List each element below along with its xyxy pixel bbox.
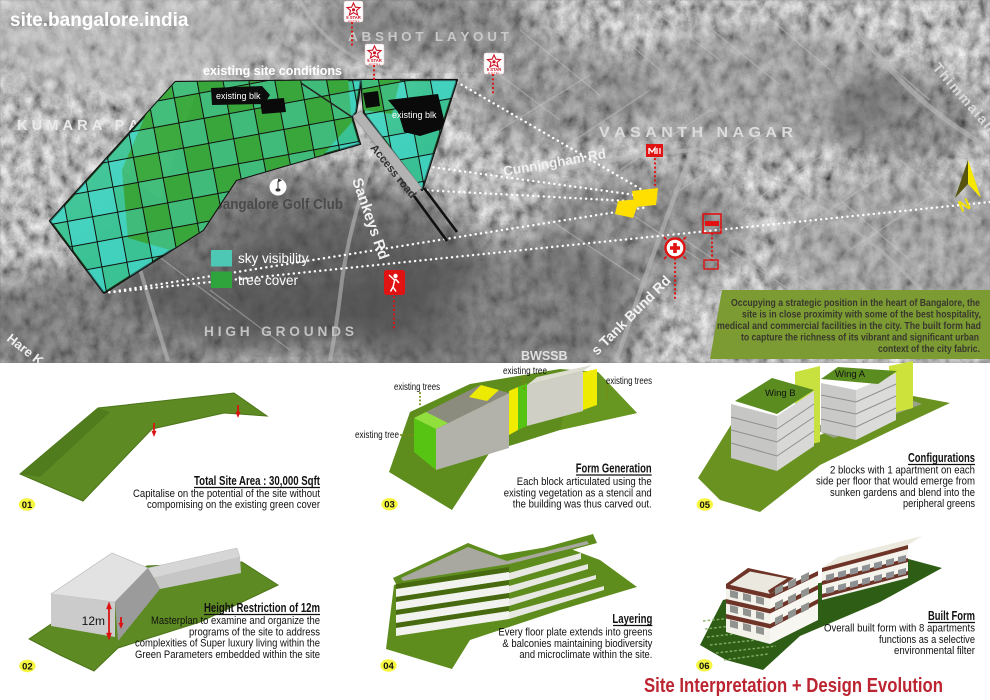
svg-text:medical and commercial facilit: medical and commercial facilities in the…: [717, 321, 981, 332]
svg-text:Layering: Layering: [612, 612, 652, 626]
svg-text:environmental filter: environmental filter: [894, 645, 975, 657]
svg-text:04: 04: [383, 661, 394, 672]
svg-text:V A S A N T H N A G A R: V A S A N T H N A G A R: [599, 124, 793, 141]
svg-text:Occupying a strategic position: Occupying a strategic position in the he…: [731, 298, 980, 309]
svg-text:Total Site Area : 30,000 Sqft: Total Site Area : 30,000 Sqft: [194, 474, 321, 488]
svg-text:existing site conditions: existing site conditions: [203, 63, 342, 78]
svg-text:Configurations: Configurations: [908, 451, 975, 465]
svg-text:& balconies maintaining biodiv: & balconies maintaining biodiversity: [502, 638, 652, 650]
svg-text:existing tree: existing tree: [355, 430, 399, 441]
svg-text:existing trees: existing trees: [606, 376, 652, 387]
svg-text:functions as a selective: functions as a selective: [879, 634, 975, 646]
svg-text:and microclimate within the si: and microclimate within the site.: [519, 649, 652, 661]
svg-text:Height Restriction of 12m: Height Restriction of 12m: [204, 601, 320, 615]
svg-text:Bangalore Golf Club: Bangalore Golf Club: [213, 197, 343, 213]
svg-text:tree cover: tree cover: [238, 273, 299, 288]
svg-text:H O T E L: H O T E L: [348, 19, 360, 23]
svg-text:existing blk: existing blk: [216, 91, 261, 101]
svg-text:A B S H O T L A Y O U T: A B S H O T L A Y O U T: [348, 29, 509, 44]
svg-text:12m: 12m: [82, 614, 105, 628]
svg-text:Built Form: Built Form: [928, 609, 975, 623]
svg-text:03: 03: [384, 500, 395, 511]
svg-text:sunken gardens and blend into: sunken gardens and blend into the: [830, 487, 975, 499]
svg-text:compomising on the existing gr: compomising on the existing green cover: [147, 499, 320, 511]
svg-text:site is in close proximity wit: site is in close proximity with some of …: [742, 310, 981, 321]
svg-text:02: 02: [22, 662, 33, 673]
svg-text:05: 05: [700, 500, 711, 511]
svg-text:to capture the richness of its: to capture the richness of its vibrant a…: [741, 333, 979, 344]
svg-text:existing tree: existing tree: [503, 366, 547, 377]
svg-text:K U M A R A P A: K U M A R A P A: [17, 117, 139, 134]
svg-text:side per floor that would emer: side per floor that would emerge from: [816, 476, 975, 488]
svg-text:Green Parameters embedded with: Green Parameters embedded within the sit…: [135, 649, 320, 661]
svg-text:programs of the site to addres: programs of the site to address: [189, 626, 320, 638]
svg-text:Masterplan to examine and orga: Masterplan to examine and organize the: [151, 615, 320, 627]
svg-text:Overall built form with 8 apar: Overall built form with 8 apartments: [824, 623, 975, 635]
svg-text:H O T E L: H O T E L: [488, 71, 500, 75]
svg-text:the building was thus carved o: the building was thus carved out.: [513, 499, 652, 511]
svg-text:existing trees: existing trees: [394, 382, 440, 393]
svg-text:01: 01: [22, 500, 33, 511]
svg-text:H I G H G R O U N D S: H I G H G R O U N D S: [204, 324, 354, 339]
svg-text:sky visibility: sky visibility: [238, 251, 309, 266]
svg-text:Each block articulated using t: Each block articulated using the: [517, 476, 652, 488]
svg-text:complexities of Super luxury l: complexities of Super luxury living with…: [135, 638, 320, 650]
svg-text:Form Generation: Form Generation: [576, 462, 652, 476]
svg-text:existing vegetation as a stenc: existing vegetation as a stencil and: [504, 487, 652, 499]
svg-text:peripheral greens: peripheral greens: [903, 498, 975, 510]
svg-text:Site Interpretation + Design E: Site Interpretation + Design Evolution: [644, 674, 943, 697]
svg-text:06: 06: [699, 661, 710, 672]
svg-text:site.bangalore.india: site.bangalore.india: [10, 10, 189, 31]
svg-text:Wing A: Wing A: [835, 369, 866, 380]
svg-text:2 blocks with 1 apartment on e: 2 blocks with 1 apartment on each: [830, 464, 975, 476]
svg-text:context of the city fabric.: context of the city fabric.: [878, 344, 980, 355]
svg-text:Every floor plate extends into: Every floor plate extends into greens: [498, 627, 652, 639]
svg-text:existing blk: existing blk: [392, 110, 437, 120]
svg-text:Wing B: Wing B: [765, 388, 796, 399]
